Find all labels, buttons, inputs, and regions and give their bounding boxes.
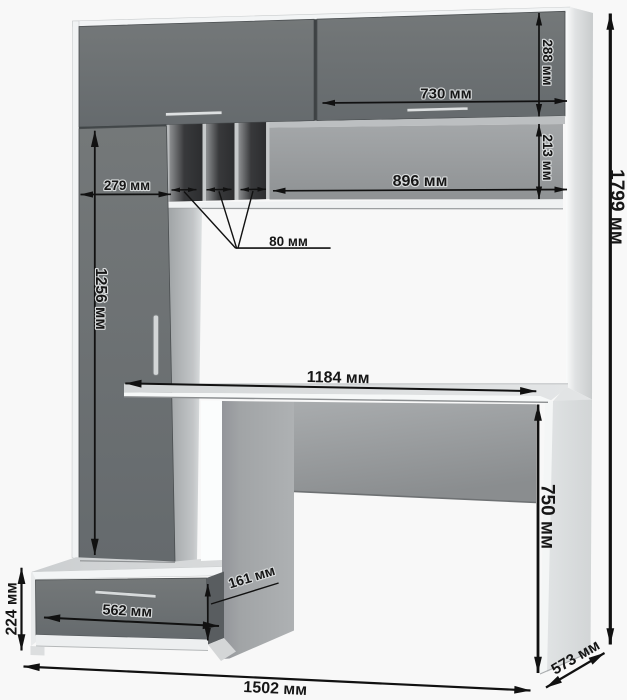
svg-text:896 мм: 896 мм (393, 173, 448, 190)
svg-text:224 мм: 224 мм (4, 582, 21, 635)
svg-text:1184 мм: 1184 мм (307, 369, 370, 387)
svg-text:730 мм: 730 мм (420, 86, 471, 103)
svg-text:80 мм: 80 мм (269, 234, 308, 249)
svg-text:279 мм: 279 мм (104, 178, 150, 193)
svg-text:1502 мм: 1502 мм (243, 679, 307, 699)
svg-text:1799 мм: 1799 мм (606, 169, 627, 245)
svg-text:213 мм: 213 мм (540, 134, 555, 180)
svg-text:1256 мм: 1256 мм (92, 268, 109, 330)
svg-text:288 мм: 288 мм (540, 39, 555, 85)
svg-text:562 мм: 562 мм (102, 602, 152, 621)
svg-text:750 мм: 750 мм (537, 484, 558, 549)
